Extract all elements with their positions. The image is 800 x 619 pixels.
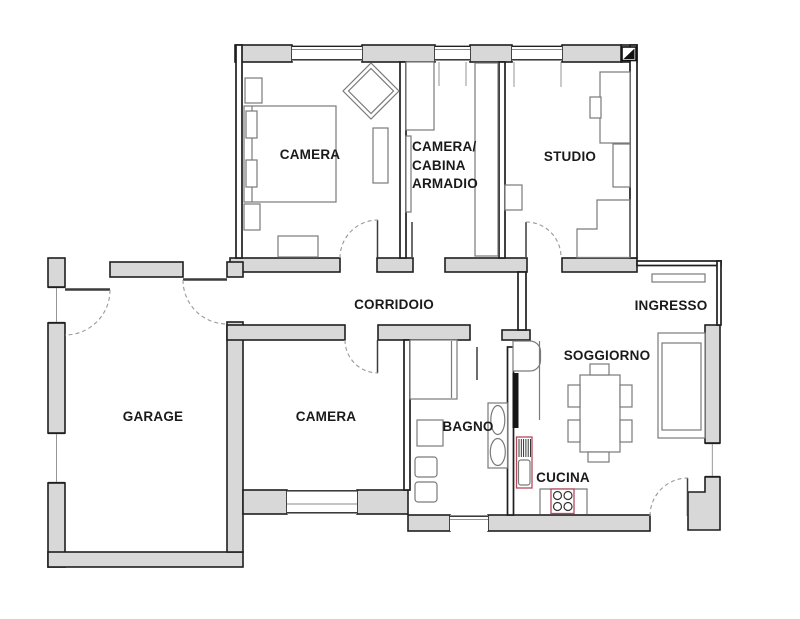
chair <box>590 364 609 375</box>
window-bottom-gap <box>450 515 488 531</box>
room-label-ingresso: INGRESSO <box>635 298 708 313</box>
nightstand <box>244 204 260 230</box>
window-camera-top <box>292 46 362 61</box>
room-label-camera-top: CAMERA <box>280 147 340 162</box>
bidet <box>490 439 505 466</box>
desk-chair <box>590 97 601 118</box>
door-entrance-left <box>65 290 110 336</box>
room-label-camera-cabina-1: CAMERA/ <box>412 139 476 154</box>
closet-side <box>406 136 411 212</box>
pillow <box>246 111 257 138</box>
window-camera-bottom <box>287 490 357 514</box>
chair <box>568 420 580 442</box>
floor-plan-drawing: CAMERA CAMERA/ CABINA ARMADIO STUDIO COR… <box>0 0 800 619</box>
door-studio <box>526 222 561 257</box>
desk <box>600 72 630 143</box>
stove <box>551 489 574 514</box>
room-label-studio: STUDIO <box>544 149 596 164</box>
step-unit <box>577 200 630 258</box>
window-cabina <box>435 46 470 61</box>
north-corner-marker-icon <box>622 47 636 61</box>
pouf-table <box>343 63 399 119</box>
window-garage-lower <box>48 433 65 483</box>
washbasin <box>417 420 443 446</box>
wardrobe-column <box>475 63 498 256</box>
washer <box>415 482 437 502</box>
console <box>652 274 705 282</box>
bench <box>278 236 318 257</box>
chair <box>620 420 632 442</box>
window-studio <box>512 46 562 61</box>
chair <box>568 385 580 407</box>
nightstand <box>245 78 262 103</box>
chair <box>588 452 609 462</box>
door-camera-bottom <box>345 340 378 373</box>
closet <box>406 62 434 130</box>
bathtub <box>410 340 457 399</box>
door-camera-top <box>340 220 378 258</box>
floor-plan-canvas: CAMERA CAMERA/ CABINA ARMADIO STUDIO COR… <box>0 0 800 619</box>
door-soggiorno <box>650 478 688 516</box>
dining-table <box>580 375 620 452</box>
kitchen-sink <box>513 341 541 371</box>
room-label-garage: GARAGE <box>123 409 183 424</box>
room-label-camera-bottom: CAMERA <box>296 409 356 424</box>
ingresso-right-wall <box>717 261 721 325</box>
shelf <box>505 185 522 210</box>
window-garage-upper <box>48 287 65 323</box>
room-label-camera-cabina-3: ARMADIO <box>412 176 478 191</box>
room-label-bagno: BAGNO <box>442 419 493 434</box>
dresser <box>373 128 388 183</box>
ingresso-top-wall <box>637 261 721 266</box>
room-label-corridoio: CORRIDOIO <box>354 297 434 312</box>
sofa <box>658 333 705 438</box>
door-entrance-right <box>183 280 227 325</box>
bookshelf <box>613 144 630 187</box>
radiator <box>415 457 437 477</box>
chair <box>620 385 632 407</box>
flue <box>513 373 519 428</box>
fridge <box>517 437 533 488</box>
room-label-camera-cabina-2: CABINA <box>412 158 466 173</box>
pillow <box>246 160 257 187</box>
room-label-soggiorno: SOGGIORNO <box>564 348 651 363</box>
room-label-cucina: CUCINA <box>536 470 590 485</box>
window-soggiorno <box>705 443 720 477</box>
corridor-ingresso-partition <box>518 272 526 330</box>
